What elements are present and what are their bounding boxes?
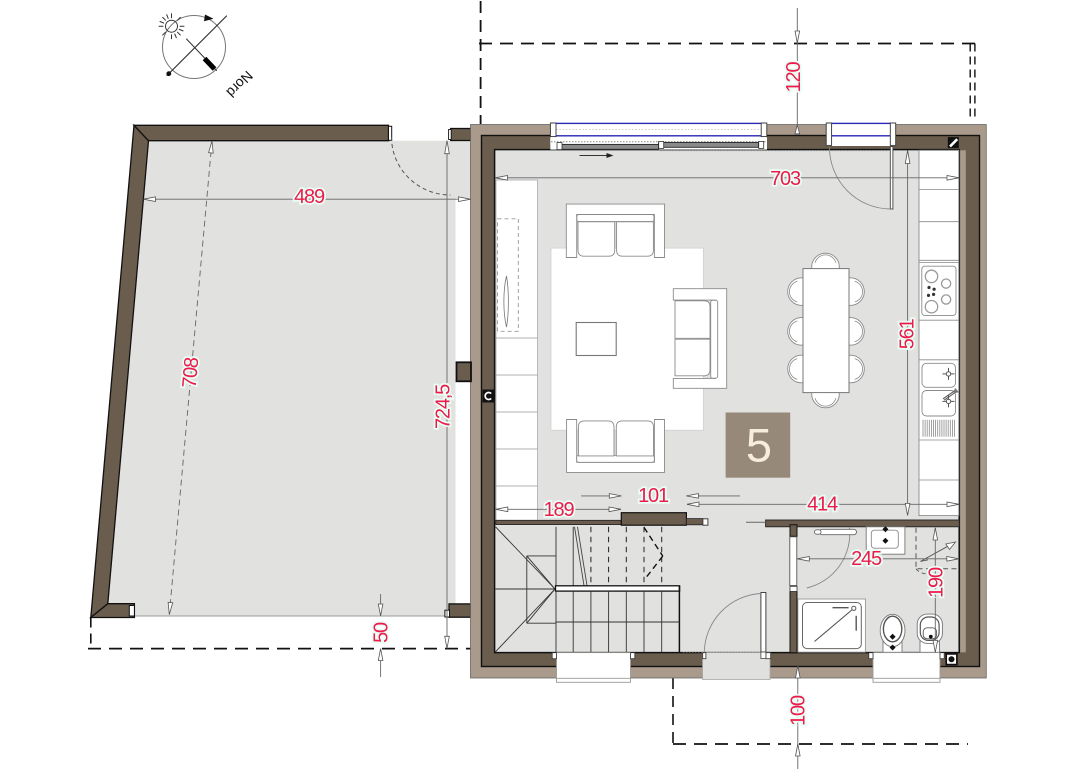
svg-text:50: 50 bbox=[371, 622, 393, 643]
svg-text:245: 245 bbox=[851, 548, 882, 570]
svg-text:703: 703 bbox=[770, 168, 801, 190]
svg-text:190: 190 bbox=[926, 567, 948, 598]
svg-text:101: 101 bbox=[638, 485, 669, 507]
svg-text:708: 708 bbox=[179, 356, 204, 389]
svg-text:100: 100 bbox=[788, 695, 810, 726]
svg-text:5: 5 bbox=[746, 419, 772, 472]
svg-text:724,5: 724,5 bbox=[433, 384, 455, 429]
svg-text:189: 189 bbox=[544, 499, 575, 521]
svg-text:489: 489 bbox=[294, 186, 325, 208]
svg-text:414: 414 bbox=[807, 494, 838, 516]
svg-text:561: 561 bbox=[897, 318, 919, 349]
svg-text:120: 120 bbox=[783, 62, 805, 93]
